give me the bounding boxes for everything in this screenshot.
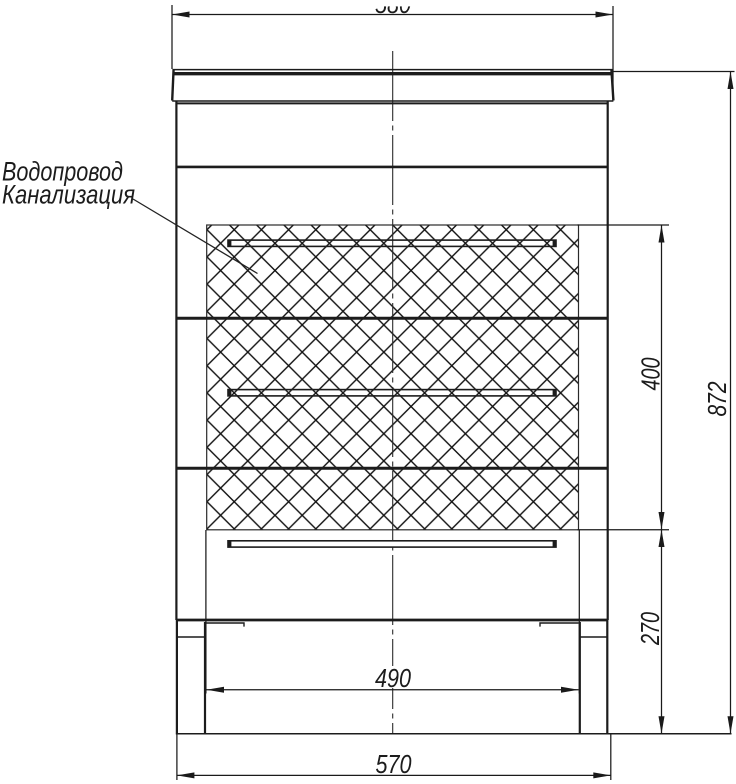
svg-text:Канализация: Канализация xyxy=(2,180,135,210)
svg-text:490: 490 xyxy=(375,665,411,693)
svg-text:400: 400 xyxy=(638,358,666,391)
svg-text:570: 570 xyxy=(376,751,412,779)
svg-text:872: 872 xyxy=(704,382,732,417)
svg-text:270: 270 xyxy=(637,612,665,646)
